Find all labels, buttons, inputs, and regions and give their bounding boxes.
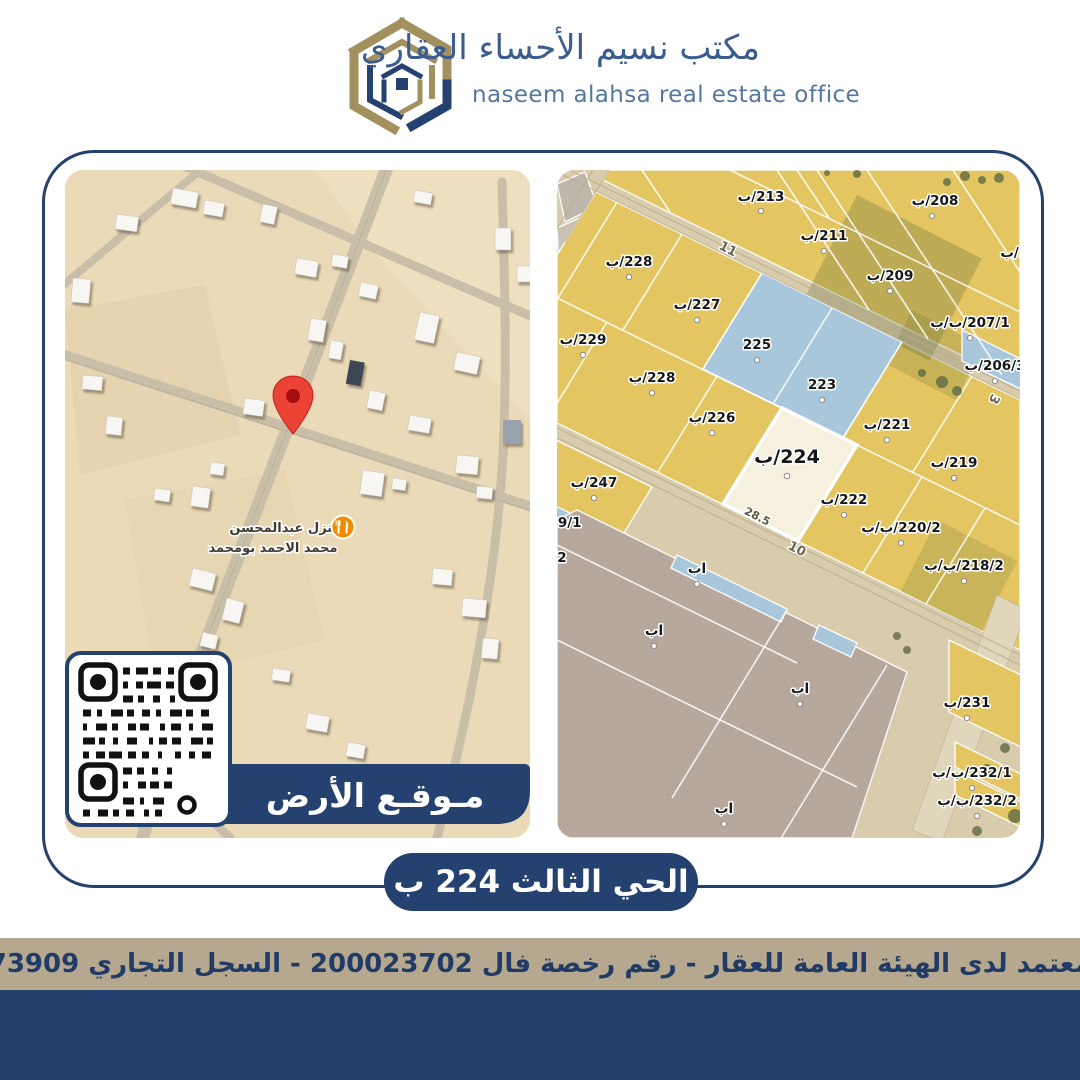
poi-name-line2: محمد الاحمد بومحمد: [208, 541, 337, 556]
svg-text:اب: اب: [791, 681, 809, 697]
parcel-plan-map[interactable]: 11 10 3 28.5 213/ب 208/ب 211/ب 209/ب 207…: [557, 170, 1020, 838]
svg-text:225: 225: [743, 337, 771, 353]
company-title-english: naseem alahsa real estate office: [472, 82, 762, 108]
svg-text:218/2/ب/ب: 218/2/ب/ب: [924, 558, 1004, 574]
svg-text:207/1/ب/ب: 207/1/ب/ب: [930, 315, 1010, 331]
certification-bar: مسوق معتمد لدى الهيئة العامة للعقار - رق…: [0, 938, 1080, 990]
svg-text:231/ب: 231/ب: [944, 695, 991, 711]
svg-text:2: 2: [557, 550, 566, 566]
svg-text:208/ب: 208/ب: [912, 193, 959, 209]
svg-text:224/ب: 224/ب: [754, 446, 820, 468]
svg-text:219/ب: 219/ب: [931, 455, 978, 471]
svg-text:213/ب: 213/ب: [738, 189, 785, 205]
svg-text:228/ب: 228/ب: [629, 370, 676, 386]
svg-text:226/ب: 226/ب: [689, 410, 736, 426]
ribbon-label: مـوقـع الأرض: [266, 775, 485, 816]
svg-text:20/ب: 20/ب: [1000, 245, 1020, 261]
svg-text:اب: اب: [688, 561, 706, 577]
svg-text:206/3/ب: 206/3/ب: [964, 358, 1020, 374]
svg-text:اب: اب: [715, 801, 733, 817]
restaurant-poi-icon: [332, 516, 355, 539]
contact-footer: nseemalahsa.com nseemalahsa 0594977277 0…: [0, 990, 1080, 1080]
poi-name-line1: منزل عبدالمحسن: [229, 521, 340, 536]
svg-text:220/2/ب/ب: 220/2/ب/ب: [861, 520, 941, 536]
svg-text:اب: اب: [645, 623, 663, 639]
district-banner: الحي الثالث 224 ب: [384, 853, 698, 911]
svg-text:227/ب: 227/ب: [674, 297, 721, 313]
svg-text:232/1/ب/ب: 232/1/ب/ب: [932, 765, 1012, 781]
svg-text:247/ب: 247/ب: [571, 475, 618, 491]
svg-text:209/ب: 209/ب: [867, 268, 914, 284]
svg-text:49/1: 49/1: [557, 515, 582, 531]
svg-text:229/ب: 229/ب: [560, 332, 607, 348]
svg-text:232/2/ب/ب: 232/2/ب/ب: [937, 793, 1017, 809]
district-label: الحي الثالث 224 ب: [393, 864, 688, 900]
svg-text:223: 223: [808, 377, 836, 393]
svg-text:222/ب: 222/ب: [821, 492, 868, 508]
company-title-arabic: مكتب نسيم الأحساء العقاري: [470, 28, 760, 68]
qr-code[interactable]: [67, 653, 230, 825]
certification-text: مسوق معتمد لدى الهيئة العامة للعقار - رق…: [0, 949, 1080, 979]
flyer-page: مكتب نسيم الأحساء العقاري naseem alahsa …: [0, 0, 1080, 1080]
satellite-location-map[interactable]: منزل عبدالمحسن محمد الاحمد بومحمد مـوقـع…: [65, 170, 530, 838]
svg-text:221/ب: 221/ب: [864, 417, 911, 433]
svg-text:211/ب: 211/ب: [801, 228, 848, 244]
svg-text:228/ب: 228/ب: [606, 254, 653, 270]
